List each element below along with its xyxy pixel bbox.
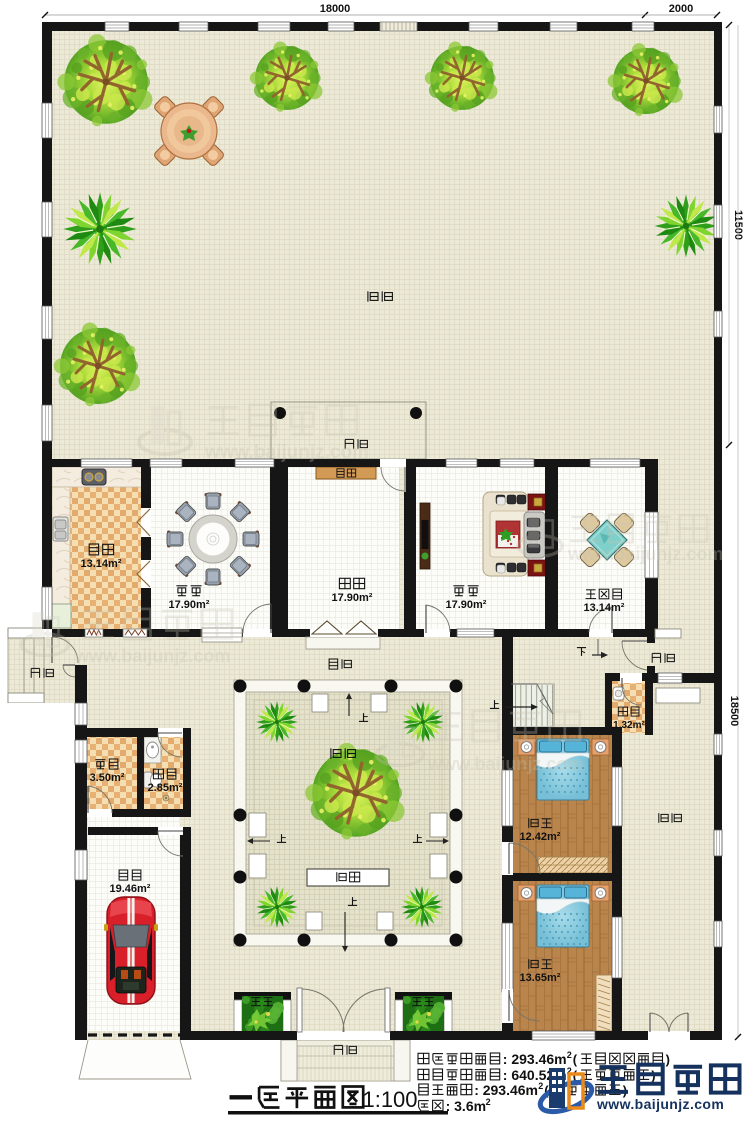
svg-text:www.baijunjz.com: www.baijunjz.com [74, 646, 230, 666]
svg-text:17.90m²: 17.90m² [332, 592, 373, 604]
svg-text:: 3.6m: : 3.6m [446, 1098, 486, 1114]
svg-text:12.42m²: 12.42m² [520, 831, 561, 843]
svg-text:13.65m²: 13.65m² [520, 972, 561, 984]
svg-text:www.baijunjz.com: www.baijunjz.com [567, 544, 723, 564]
svg-text:13.14m²: 13.14m² [81, 558, 122, 570]
svg-text:17.90m²: 17.90m² [446, 599, 487, 611]
svg-text:(: ( [573, 1052, 578, 1067]
svg-text:www.baijunjz.com: www.baijunjz.com [427, 754, 583, 774]
svg-text:2000: 2000 [669, 3, 693, 15]
svg-text:): ) [666, 1052, 670, 1067]
svg-text:2: 2 [486, 1097, 491, 1107]
svg-text:18500: 18500 [728, 696, 740, 727]
svg-text:2: 2 [567, 1050, 572, 1060]
svg-text:1.32m²: 1.32m² [613, 720, 645, 731]
svg-text:3.50m²: 3.50m² [90, 772, 125, 784]
svg-text:: 293.46m: : 293.46m [503, 1051, 567, 1067]
svg-text:: 293.46m: : 293.46m [474, 1082, 538, 1098]
svg-text:2.85m²: 2.85m² [148, 782, 183, 794]
svg-text:13.14m²: 13.14m² [584, 602, 625, 614]
svg-text:19.46m²: 19.46m² [110, 883, 151, 895]
svg-text:1:100: 1:100 [362, 1087, 417, 1112]
svg-text:www.baijunjz.com: www.baijunjz.com [204, 442, 369, 463]
svg-text:2: 2 [538, 1081, 543, 1091]
svg-text:www.baijunjz.com: www.baijunjz.com [596, 1096, 724, 1112]
svg-text:18000: 18000 [320, 3, 351, 15]
